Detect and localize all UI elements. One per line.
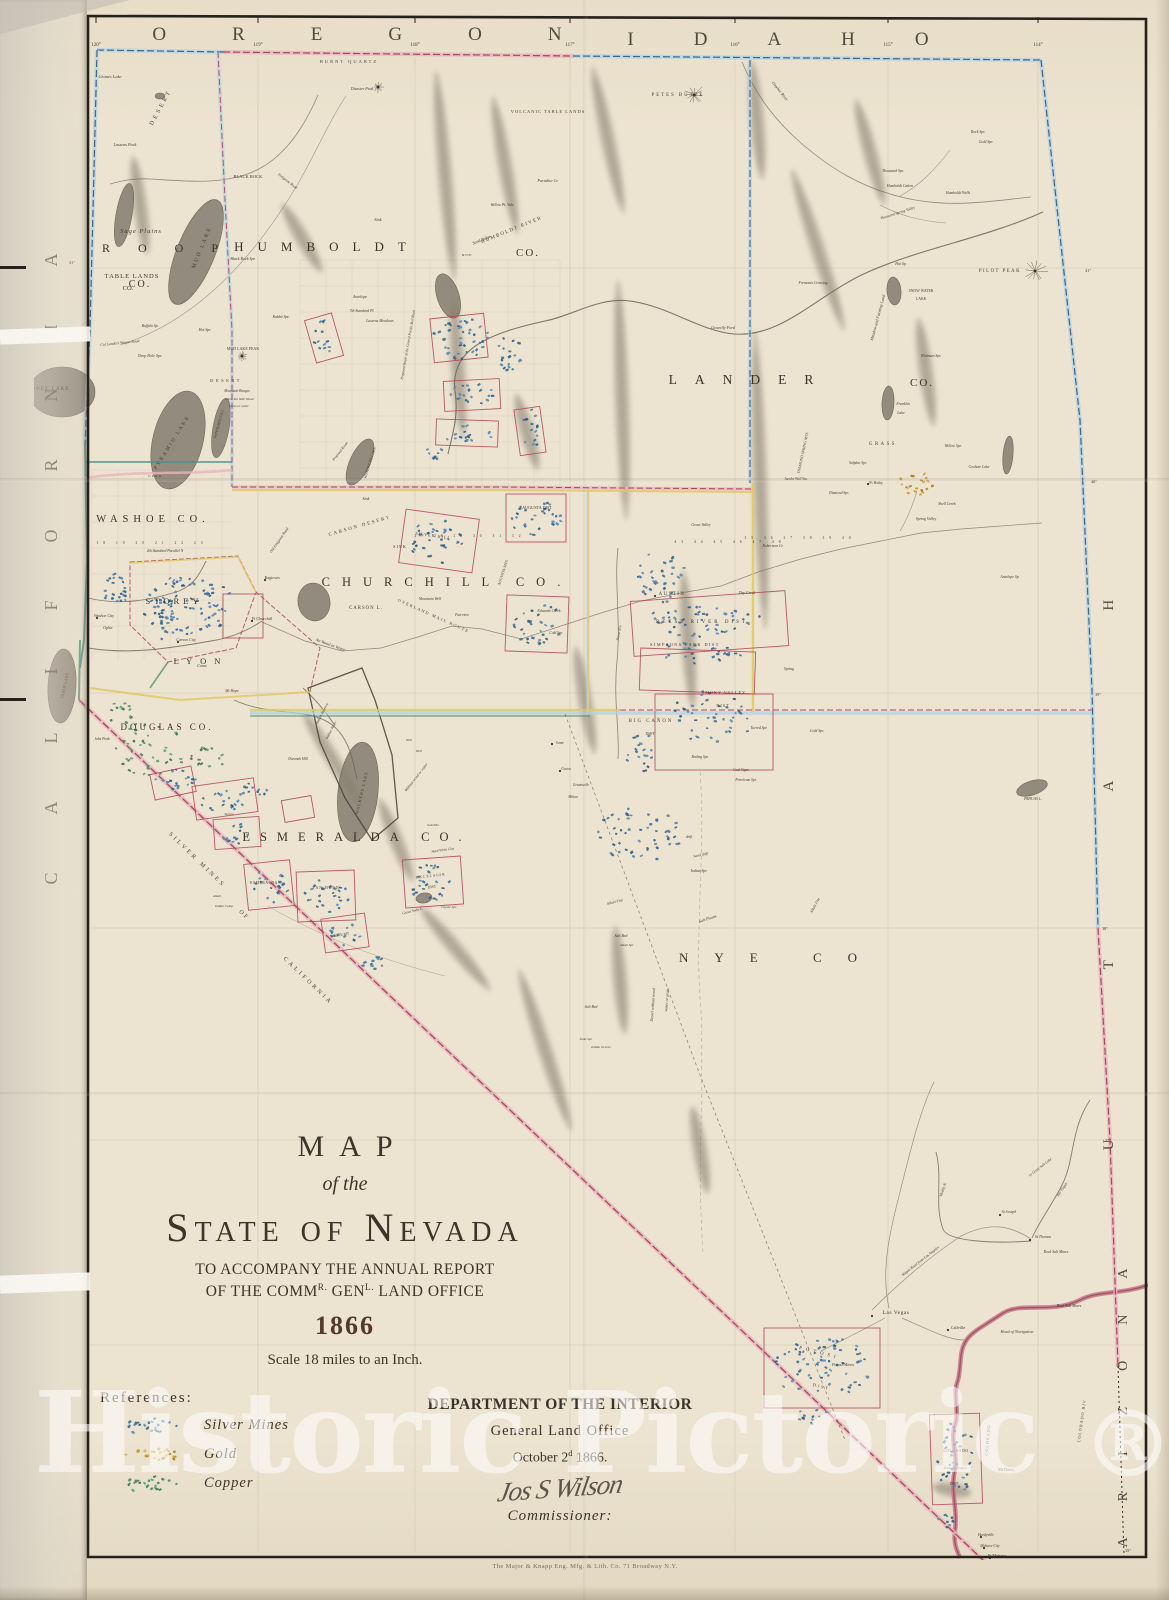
mine-dot	[128, 708, 131, 711]
mine-dot	[501, 359, 503, 362]
mine-dot	[618, 851, 621, 854]
mine-dot	[265, 788, 269, 792]
map-label: Hot Sp.	[894, 262, 906, 266]
mine-dot	[435, 530, 438, 533]
mine-dot	[344, 887, 347, 890]
map-label: Black Rock Spr.	[230, 256, 255, 261]
map-label: REESE RIVER DIST	[656, 620, 748, 625]
mine-dot	[318, 894, 322, 897]
mine-dot	[853, 1381, 856, 1383]
mine-dot	[165, 631, 169, 634]
mine-dot	[728, 730, 732, 734]
mine-dot	[715, 607, 718, 610]
mine-dot	[192, 607, 196, 610]
mine-dot	[158, 613, 161, 616]
muddy-river	[936, 1152, 1031, 1242]
map-label: VAN HORN	[312, 886, 339, 890]
mine-dot	[733, 627, 736, 630]
mine-dot	[529, 533, 532, 536]
longitude-tick-label: 115°	[883, 43, 892, 48]
mine-dot	[828, 1338, 831, 1341]
mine-dot	[559, 514, 563, 517]
mine-dot	[211, 614, 215, 616]
mining-district-box	[655, 694, 773, 770]
mine-dot	[624, 832, 627, 834]
mine-cluster-silver	[303, 879, 350, 913]
mine-dot	[457, 353, 460, 355]
mine-dot	[270, 887, 273, 889]
mine-dot	[124, 599, 127, 602]
mine-clusters	[104, 318, 974, 1528]
mine-dot	[653, 839, 656, 842]
mine-dot	[900, 483, 903, 486]
mine-dot	[665, 656, 668, 659]
mine-dot	[468, 328, 472, 332]
mine-dot	[823, 1346, 827, 1348]
mine-dot	[625, 849, 628, 852]
peak-ray	[239, 353, 241, 354]
mine-dot	[342, 943, 345, 946]
mine-dot	[236, 799, 240, 803]
mine-dot	[352, 938, 356, 942]
mine-dot	[128, 705, 131, 708]
mine-dot	[661, 601, 664, 604]
mine-dot	[211, 592, 215, 595]
map-label: Edwards Creek	[536, 609, 561, 613]
mine-dot	[468, 434, 472, 437]
mine-dot	[253, 887, 256, 890]
peak-symbols	[238, 82, 1048, 361]
mountain-range	[445, 298, 471, 439]
mine-dot	[936, 1460, 940, 1464]
mine-dot	[218, 757, 220, 760]
map-label: COLORADO	[943, 1449, 968, 1453]
mine-dot	[186, 783, 189, 786]
map-label: Hardyville	[977, 1533, 994, 1537]
mine-dot	[646, 765, 650, 768]
peak-center	[1033, 269, 1036, 272]
mine-dot	[318, 347, 321, 350]
map-label: Ft Ruby	[869, 480, 884, 485]
map-label: GRASS	[869, 442, 897, 447]
mine-dot	[439, 448, 443, 452]
mine-dot	[208, 765, 212, 767]
mine-dot	[908, 485, 912, 488]
mine-dot	[716, 653, 720, 655]
map-label: PAHUAS L.	[1023, 797, 1042, 801]
mine-dot	[166, 622, 170, 624]
mine-dot	[526, 641, 530, 644]
town-dot	[1029, 1239, 1031, 1241]
mine-dot	[544, 624, 548, 627]
map-label: AUGUSTA DIST	[522, 505, 552, 510]
mine-dot	[537, 613, 540, 616]
mine-dot	[233, 836, 237, 838]
map-label: Well	[416, 749, 422, 753]
map-label: Lassens Meadows	[365, 319, 394, 323]
map-label: BLACK ROCK	[234, 174, 264, 179]
map-label: Rock Spr.	[970, 130, 985, 134]
mine-dot	[110, 719, 113, 722]
mine-dot	[477, 383, 481, 386]
mine-dot	[115, 706, 118, 709]
mine-dot	[507, 365, 511, 368]
map-label: Grass Valley	[691, 523, 711, 527]
lake	[111, 182, 138, 248]
mine-dot	[130, 757, 133, 759]
mine-dot	[413, 548, 416, 551]
mine-dot	[104, 590, 107, 593]
map-label: SILVER MINES	[167, 832, 226, 890]
map-label: Cold Spr.	[549, 631, 562, 635]
mine-dot	[147, 735, 149, 737]
mine-dot	[428, 452, 431, 455]
mine-dot	[422, 880, 426, 884]
mine-dot	[746, 613, 749, 616]
map-label: BURNT QUARTZ	[320, 59, 378, 64]
mine-dot	[181, 769, 184, 772]
mine-dot	[597, 831, 600, 834]
map-label: Sulphur Spr.	[849, 461, 867, 465]
map-label: Mt Davis	[998, 1467, 1014, 1472]
mountain-crest	[281, 206, 323, 270]
mine-dot	[698, 606, 701, 608]
mine-dot	[729, 719, 733, 723]
mine-dot	[722, 718, 725, 721]
map-label: SIMPSONS PARK DIST	[650, 642, 720, 647]
map-label: TABLE LANDS	[105, 273, 160, 280]
mine-dot	[823, 1359, 826, 1361]
mine-dot	[470, 395, 473, 398]
mine-dot	[551, 520, 555, 523]
map-label: Meadow and Farming Land	[869, 293, 887, 342]
mine-dot	[170, 610, 173, 613]
mine-dot	[127, 769, 131, 772]
mine-dot	[807, 1374, 810, 1377]
map-label: WASHOE CO.	[96, 514, 210, 525]
map-label: Sage Plains	[120, 228, 162, 235]
town-dot	[999, 1214, 1001, 1216]
mine-dot	[863, 1358, 866, 1360]
mine-dot	[160, 637, 163, 640]
mine-dot	[646, 827, 649, 829]
map-label: Head of Navigation	[999, 1329, 1033, 1334]
mine-dot	[473, 333, 476, 336]
map-label: R.57.E.	[461, 253, 472, 257]
mountain-range	[684, 1104, 715, 1195]
mine-dot	[373, 968, 376, 971]
map-label: DIST	[716, 703, 729, 708]
mine-dot	[709, 736, 713, 739]
map-label: DIST	[950, 1482, 959, 1486]
mine-dot	[152, 756, 155, 759]
mine-dot	[415, 891, 418, 893]
mine-dot	[674, 609, 677, 612]
mine-dot	[332, 892, 335, 895]
map-label: Willow Spr.	[944, 444, 961, 448]
mine-dot	[419, 866, 423, 868]
map-label: DIST	[646, 731, 655, 736]
map-label: Jobs Peak	[94, 737, 110, 741]
mine-dot	[412, 888, 416, 891]
mine-dot	[184, 606, 187, 608]
map-label: 7th Standard Pl.	[350, 309, 375, 313]
mine-dot	[788, 1351, 791, 1354]
mine-dot	[422, 888, 425, 890]
mine-dot	[668, 616, 671, 619]
mine-dot	[485, 398, 489, 401]
map-label: Rabbit Spr.	[272, 315, 290, 319]
mine-dot	[694, 719, 697, 721]
mountain-range	[275, 199, 329, 276]
mine-dot	[555, 522, 559, 526]
map-label: Durands Mill	[287, 757, 307, 761]
mine-dot	[731, 614, 735, 618]
mine-dot	[176, 618, 179, 620]
mine-dot	[209, 584, 212, 586]
mine-dot	[532, 534, 536, 536]
mine-dot	[635, 734, 639, 738]
mining-district-box	[399, 509, 480, 573]
mine-dot	[363, 961, 367, 964]
mine-dot	[815, 1409, 818, 1412]
mountain-crest	[854, 105, 886, 199]
mine-dot	[454, 437, 457, 439]
mine-dot	[328, 350, 331, 352]
mine-dot	[480, 402, 483, 404]
mine-cluster-copper	[190, 746, 224, 767]
mine-dot	[126, 743, 129, 745]
lake	[430, 271, 465, 322]
mine-dot	[191, 782, 194, 785]
mine-dot	[164, 583, 167, 586]
map-label: Rock Salt Mines	[1056, 1304, 1082, 1308]
mine-dot	[641, 571, 644, 574]
mine-dot	[667, 838, 670, 841]
mine-dot	[610, 813, 614, 816]
mine-dot	[338, 896, 341, 898]
mine-dot	[158, 615, 162, 619]
map-label: Muddy R.	[938, 1182, 947, 1198]
map-label: COLORADO RIV	[1076, 1399, 1087, 1443]
peak-ray	[1035, 260, 1036, 269]
map-label: Las Vegas	[883, 1310, 910, 1316]
mine-dot	[522, 612, 525, 615]
mine-dot	[122, 581, 125, 584]
map-label: Ione	[556, 740, 564, 745]
mine-dot	[599, 837, 603, 839]
mine-dot	[318, 900, 321, 903]
mine-dot	[618, 842, 621, 845]
mine-dot	[847, 1390, 850, 1393]
mine-dot	[440, 561, 444, 564]
mine-dot	[123, 702, 127, 704]
mine-dot	[526, 637, 529, 640]
map-label: Fairview	[454, 613, 469, 617]
mine-dot	[239, 829, 242, 832]
mountain-range	[485, 95, 525, 236]
map-label: 4th Standard Parallel N	[147, 549, 184, 553]
map-label: Alkali	[212, 894, 221, 898]
mine-dot	[650, 749, 653, 752]
mine-dot	[170, 612, 174, 615]
mine-dot	[515, 516, 518, 519]
map-label: 38°	[1102, 926, 1108, 931]
mine-dot	[950, 1516, 953, 1519]
mine-dot	[847, 1386, 851, 1389]
mine-dot	[502, 347, 505, 350]
mine-dot	[907, 492, 910, 494]
map-label: to Great Salt Lake	[1028, 1157, 1053, 1177]
map-label: 36	[1116, 1363, 1120, 1368]
mine-dot	[650, 570, 654, 574]
map-label: Col Landers Wagon Road	[100, 339, 140, 347]
mine-dot	[734, 653, 738, 655]
mine-dot	[516, 512, 520, 515]
mine-dot	[673, 835, 677, 838]
mine-dot	[655, 846, 659, 850]
map-label: Antelope Sp.	[999, 575, 1019, 579]
mine-dot	[443, 528, 447, 531]
peak-ray	[240, 353, 241, 355]
mine-dot	[530, 609, 533, 612]
mine-dot	[702, 613, 706, 615]
town-dot	[871, 1315, 873, 1317]
longitude-tick-label: 117°	[565, 43, 574, 48]
mine-dot	[134, 732, 137, 735]
map-label: CO.	[910, 377, 934, 389]
mine-dot	[508, 350, 511, 352]
mine-dot	[444, 519, 448, 522]
mine-dot	[711, 655, 715, 658]
map-label: Granes Lake	[98, 74, 121, 79]
mine-dot	[714, 648, 717, 650]
mine-dot	[166, 781, 169, 783]
mine-dot	[602, 819, 605, 822]
mine-dot	[672, 582, 676, 586]
map-label: Lassens Peak	[113, 142, 137, 147]
mine-dot	[470, 438, 474, 442]
map-label: 41°	[1085, 268, 1091, 273]
mine-dot	[511, 517, 514, 520]
mountain-crest	[421, 909, 489, 987]
mountain-range	[610, 280, 634, 520]
mine-dot	[799, 1410, 802, 1412]
mine-dot	[154, 612, 157, 615]
mine-dot	[643, 762, 646, 765]
mine-dot	[447, 880, 451, 884]
map-label: St Joseph	[1002, 1210, 1017, 1214]
map-label: Rio Virgen	[1055, 1182, 1068, 1198]
mine-dot	[662, 616, 665, 619]
mine-dot	[546, 502, 549, 504]
mine-dot	[714, 720, 718, 722]
map-label: Desert without wood	[649, 987, 656, 1023]
mine-dot	[654, 843, 657, 846]
mine-dot	[213, 792, 216, 795]
mine-dot	[162, 779, 165, 782]
mine-dot	[188, 577, 191, 580]
mine-dot	[677, 634, 681, 637]
mine-dot	[683, 647, 686, 650]
mine-dot	[179, 577, 182, 580]
mine-dot	[716, 740, 720, 743]
longitude-tick-label: 114°	[1033, 43, 1042, 48]
mine-dot	[148, 774, 151, 776]
mine-dot	[338, 907, 341, 910]
map-label: CHURCHILL CO.	[322, 575, 573, 589]
map-label: IDAHO	[627, 29, 988, 50]
peak-ray	[375, 88, 377, 89]
mine-dot	[175, 628, 178, 630]
map-label: Potosi Mines	[831, 1362, 854, 1367]
mine-dot	[797, 1418, 801, 1421]
mine-dot	[810, 1421, 814, 1425]
mine-dot	[721, 630, 724, 633]
mine-dot	[174, 590, 177, 593]
mine-dot	[465, 399, 467, 401]
mine-dot	[828, 1360, 831, 1362]
map-label: Jacobs Well Stn.	[784, 477, 808, 481]
mine-dot	[227, 592, 231, 595]
map-label: 40°	[1091, 479, 1097, 484]
mine-dot	[182, 585, 185, 587]
map-label: Without wood or water	[404, 762, 429, 792]
mine-dot	[111, 597, 114, 600]
lake	[142, 385, 215, 494]
map-label: DIST	[812, 1382, 830, 1391]
lake	[881, 386, 895, 421]
mine-dot	[523, 633, 526, 635]
mine-dot	[674, 822, 678, 825]
map-label: Coyote Spr.	[441, 905, 457, 909]
longitude-tick-label: 116°	[730, 43, 739, 48]
map-label: Disaster Peak	[350, 86, 374, 91]
mine-dot	[663, 587, 667, 591]
mine-dot	[806, 1363, 809, 1365]
mine-dot	[695, 605, 699, 609]
map-label: Washoe City	[94, 613, 114, 618]
mine-dot	[626, 817, 630, 819]
map-label: 37°	[1105, 1138, 1111, 1143]
mine-dot	[169, 753, 173, 756]
map-label: AUSTIN	[659, 592, 686, 597]
map-label: Sink	[374, 217, 381, 222]
mine-dot	[148, 743, 152, 747]
map-label: Mountain Ranges	[223, 389, 250, 393]
mine-dot	[435, 880, 439, 884]
map-label: Callville	[951, 1325, 966, 1330]
mine-dot	[797, 1387, 801, 1390]
peak-ray	[379, 83, 382, 86]
mine-dot	[690, 729, 693, 732]
map-label: Thousand Spr.	[882, 169, 904, 173]
peak-ray	[239, 358, 241, 360]
mine-dot	[817, 1346, 821, 1350]
mine-dot	[840, 1388, 844, 1392]
mine-dot	[225, 789, 228, 792]
mine-dot	[316, 340, 320, 343]
map-label: Wagon Road from Los Angeles	[901, 1245, 941, 1277]
mine-dot	[663, 582, 666, 584]
mine-dot	[818, 1416, 821, 1418]
map-label: Petroleum Spr.	[734, 778, 756, 782]
mine-dot	[121, 763, 124, 765]
mine-dot	[465, 436, 468, 439]
mine-dot	[782, 1385, 786, 1388]
mine-dot	[475, 348, 479, 352]
peak-ray	[243, 352, 244, 354]
